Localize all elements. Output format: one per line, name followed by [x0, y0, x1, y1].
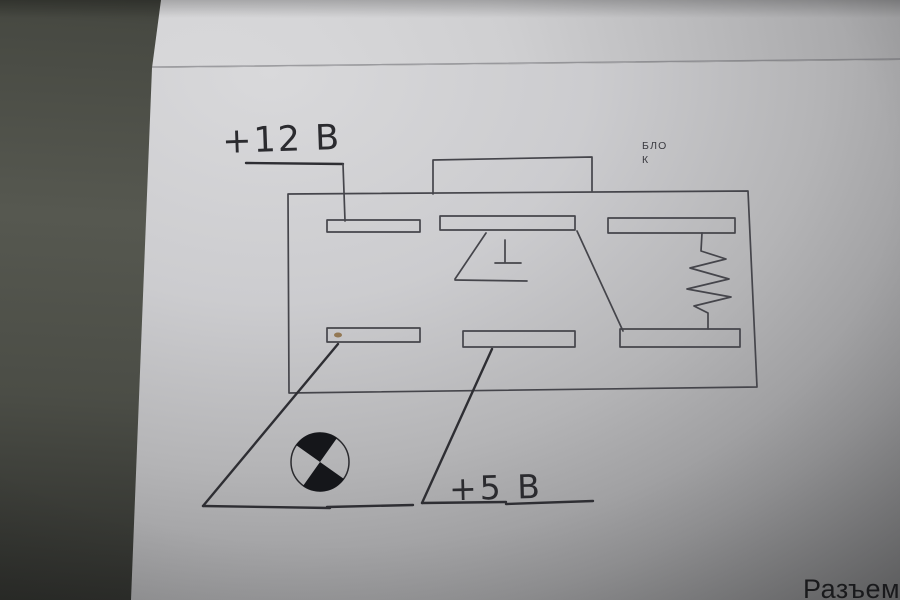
- wire-12v: [343, 164, 345, 221]
- label-block-line2: К: [642, 154, 649, 166]
- ground-leader-base: [455, 280, 527, 281]
- label-5v: +5 В: [449, 467, 544, 508]
- ground-leader-diagonal: [455, 233, 486, 279]
- pin-row-bottom: [327, 328, 740, 347]
- pin-top-left: [327, 220, 420, 232]
- ground-symbol: [455, 233, 527, 281]
- paper-edge-line: [152, 59, 900, 67]
- center-mark-leader-base1: [203, 506, 330, 508]
- connector-pinout-diagram: +12 В БЛО К: [0, 0, 900, 600]
- pin-bottom-right: [620, 329, 740, 347]
- photo-scene: +12 В БЛО К: [0, 0, 900, 600]
- center-mark-sector-top: [296, 432, 337, 462]
- pin-row-top: [327, 216, 735, 233]
- pin-bottom-middle: [463, 331, 575, 347]
- center-mark-symbol: [291, 432, 349, 491]
- label-12v-underline: [246, 163, 343, 164]
- pin-top-right: [608, 218, 735, 233]
- block-tab-outline: [433, 157, 592, 194]
- center-mark-sector-bottom: [303, 462, 344, 492]
- caption-razyem: Разъем: [803, 574, 900, 600]
- wire-cross: [577, 231, 623, 331]
- block-body-outline: [288, 191, 757, 393]
- ink-speck: [334, 333, 342, 338]
- pin-top-middle: [440, 216, 575, 230]
- resistor-symbol: [687, 233, 731, 329]
- label-block-line1: БЛО: [642, 140, 668, 152]
- label-12v: +12 В: [222, 118, 342, 162]
- center-mark-leader-base2: [327, 505, 413, 507]
